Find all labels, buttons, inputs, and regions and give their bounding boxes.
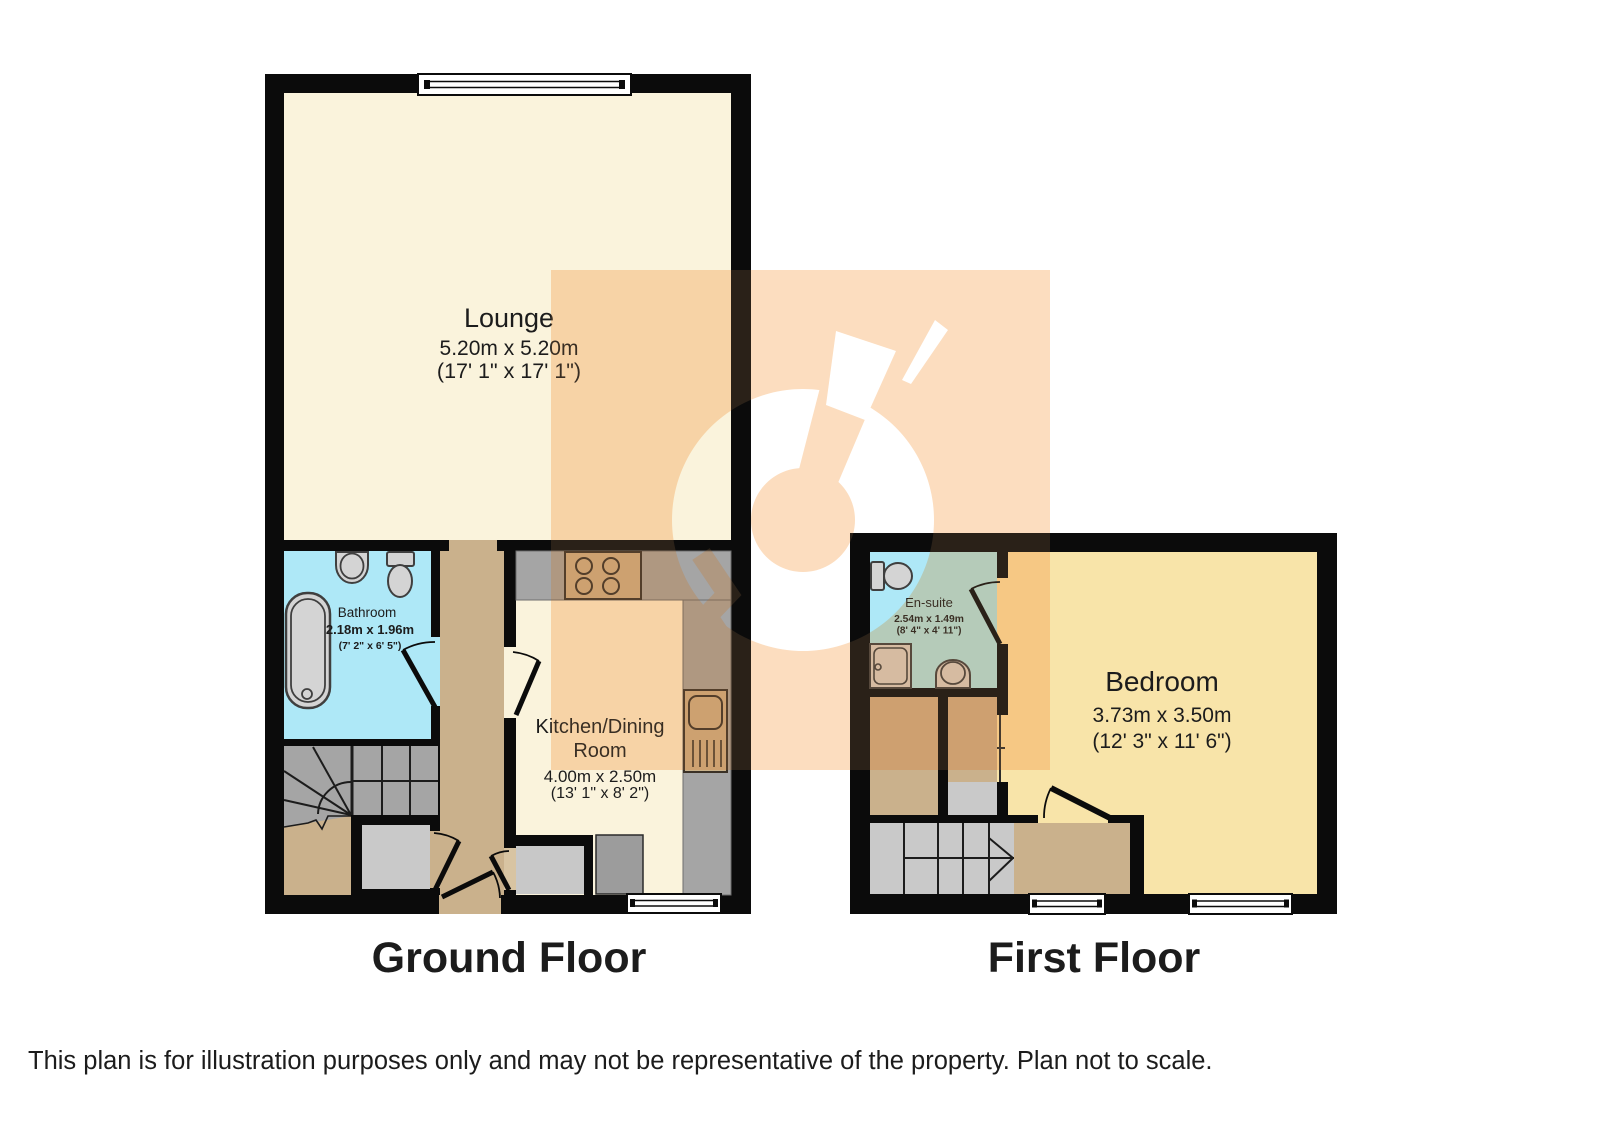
svg-text:This plan is for illustration: This plan is for illustration purposes o… [28,1047,1213,1075]
svg-text:(13' 1" x 8' 2"): (13' 1" x 8' 2") [551,785,649,802]
svg-text:First Floor: First Floor [988,934,1201,982]
svg-text:(12' 3" x 11' 6"): (12' 3" x 11' 6") [1092,730,1231,753]
svg-text:Bedroom: Bedroom [1105,666,1219,697]
svg-text:Lounge: Lounge [464,303,554,333]
svg-text:(7' 2" x 6' 5"): (7' 2" x 6' 5") [339,640,402,652]
svg-text:Ground Floor: Ground Floor [372,934,647,982]
svg-text:3.73m x 3.50m: 3.73m x 3.50m [1093,704,1232,727]
svg-text:Bathroom: Bathroom [338,605,397,620]
svg-text:2.18m x 1.96m: 2.18m x 1.96m [326,622,414,637]
